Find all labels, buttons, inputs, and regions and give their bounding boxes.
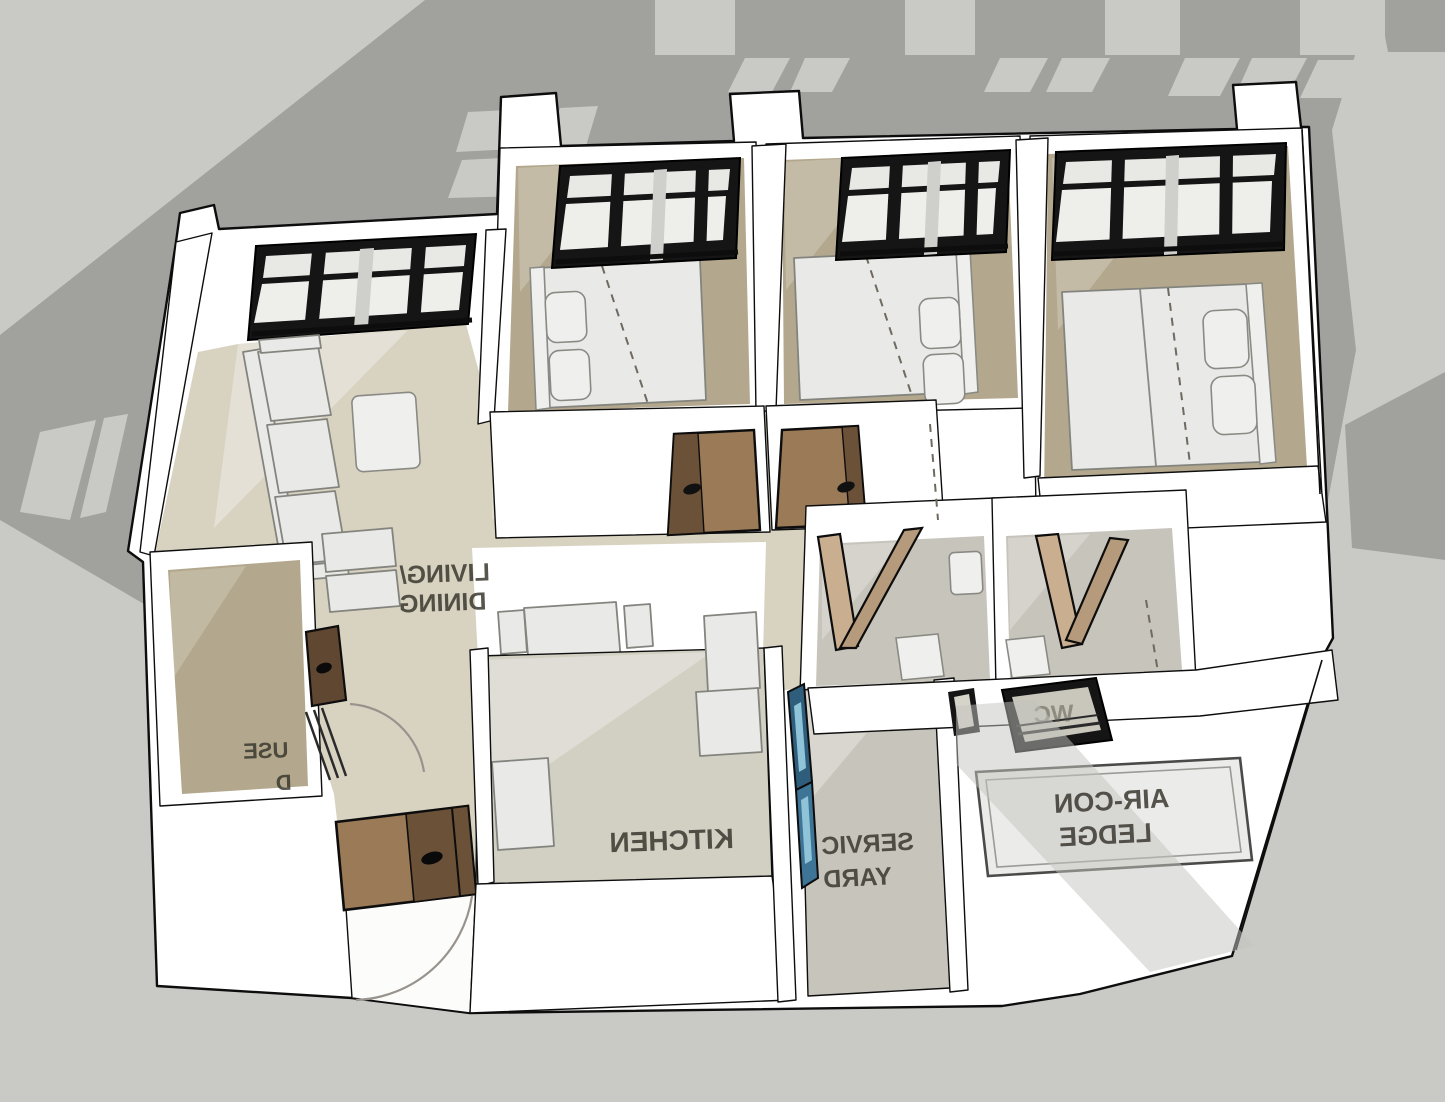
bedroom-3: [766, 136, 1030, 414]
bedroom-2: [492, 142, 762, 422]
bedroom2-window: [552, 158, 740, 268]
kitchen-counter: [696, 688, 762, 756]
sofa-cushion: [267, 419, 339, 493]
pillow: [919, 297, 962, 349]
pillow: [923, 353, 966, 405]
bedroom2-door: [668, 430, 760, 535]
living-dining-label-line2: DINING: [399, 587, 487, 618]
pillow: [549, 349, 592, 401]
tv-console: [326, 570, 400, 612]
bathroom-1: [800, 498, 998, 694]
shelter-label-fragment-line2: D: [275, 770, 292, 796]
main-bedroom: MAIN: [1030, 128, 1322, 510]
entrance-door: [336, 806, 476, 910]
sofa-cushion: [258, 346, 331, 421]
tv-console: [322, 528, 396, 572]
main-bedroom-window: [1052, 143, 1286, 260]
shelter-label-fragment-line1: USE: [243, 737, 289, 764]
living-room-window: [248, 234, 476, 340]
service-yard-label-line1: SERVIC: [821, 828, 915, 861]
service-yard-label-line2: YARD: [823, 862, 893, 894]
bathroom-2: [992, 490, 1196, 688]
toilet: [1006, 636, 1050, 678]
kitchen-label: KITCHEN: [609, 823, 734, 858]
shelter-door: [306, 626, 346, 706]
coffee-table: [351, 392, 420, 472]
aircon-label-line2: LEDGE: [1058, 818, 1152, 853]
floor-plan-render: KITCHEN: [0, 0, 1445, 1102]
entry: [336, 806, 476, 1013]
dining-chair: [624, 604, 653, 648]
kitchen-counter: [492, 758, 554, 850]
pillow: [545, 291, 588, 343]
bottom-outer-wall: [470, 876, 790, 1013]
dining-chair: [498, 610, 527, 654]
aircon-label-line1: AIR-CON: [1053, 783, 1170, 819]
bedroom3-window: [836, 150, 1010, 260]
toilet: [896, 634, 944, 680]
kitchen-counter: [704, 612, 760, 692]
living-dining-label-line1: LIVING/: [399, 558, 490, 589]
pillow: [1203, 309, 1250, 369]
pillow: [1211, 375, 1258, 435]
sink: [949, 551, 983, 595]
